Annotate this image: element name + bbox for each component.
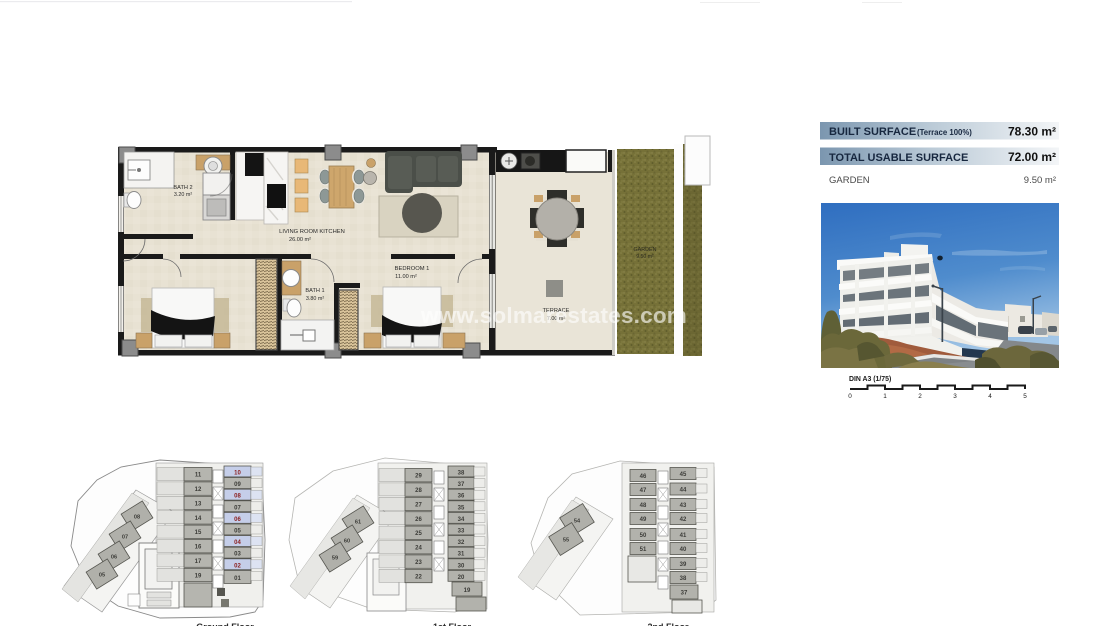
svg-text:34: 34 [458, 517, 465, 523]
svg-text:72.00 m²: 72.00 m² [1008, 150, 1056, 164]
svg-text:5: 5 [1023, 393, 1027, 400]
svg-text:36: 36 [458, 494, 465, 500]
svg-text:42: 42 [680, 517, 687, 523]
svg-text:Ground Floor: Ground Floor [196, 622, 254, 626]
svg-text:47: 47 [640, 488, 647, 494]
svg-text:DIN A3 (1/75): DIN A3 (1/75) [849, 376, 891, 383]
svg-text:54: 54 [574, 519, 581, 525]
svg-text:08: 08 [134, 515, 140, 521]
svg-text:LIVING ROOM KITCHEN: LIVING ROOM KITCHEN [279, 229, 345, 235]
svg-text:48: 48 [640, 503, 647, 509]
svg-text:05: 05 [234, 529, 241, 535]
svg-text:11: 11 [195, 473, 202, 479]
svg-text:35: 35 [458, 505, 465, 511]
svg-text:14: 14 [195, 516, 202, 522]
svg-text:9.50 m²: 9.50 m² [1024, 175, 1056, 186]
svg-text:61: 61 [355, 520, 361, 526]
svg-text:60: 60 [344, 539, 350, 545]
svg-text:44: 44 [680, 488, 687, 494]
svg-text:BATH 1: BATH 1 [305, 288, 324, 294]
svg-text:30: 30 [458, 563, 465, 569]
svg-text:13: 13 [195, 501, 202, 507]
svg-text:40: 40 [680, 547, 687, 553]
svg-text:22: 22 [415, 574, 422, 580]
svg-text:2: 2 [918, 393, 922, 400]
svg-text:37: 37 [458, 482, 465, 488]
svg-text:19: 19 [464, 588, 471, 594]
svg-text:GARDEN: GARDEN [633, 247, 656, 253]
svg-text:GARDEN: GARDEN [829, 175, 870, 186]
svg-text:37: 37 [681, 591, 688, 597]
svg-text:45: 45 [680, 472, 687, 478]
svg-text:1: 1 [883, 393, 887, 400]
svg-text:26.00 m²: 26.00 m² [289, 237, 311, 243]
svg-text:19: 19 [195, 573, 202, 579]
svg-text:29: 29 [415, 474, 422, 480]
svg-text:38: 38 [680, 576, 687, 582]
svg-text:51: 51 [640, 547, 647, 553]
svg-text:1st Floor: 1st Floor [433, 622, 472, 626]
svg-text:08: 08 [234, 494, 241, 500]
svg-text:24: 24 [415, 546, 422, 552]
svg-text:43: 43 [680, 503, 687, 509]
svg-text:59: 59 [332, 556, 338, 562]
svg-text:55: 55 [563, 538, 569, 544]
svg-text:3.80 m²: 3.80 m² [306, 296, 324, 302]
svg-text:32: 32 [458, 540, 465, 546]
svg-text:17: 17 [195, 559, 202, 565]
svg-text:06: 06 [111, 555, 117, 561]
svg-text:BUILT SURFACE: BUILT SURFACE [829, 126, 916, 138]
svg-text:07: 07 [234, 505, 241, 511]
svg-text:15: 15 [195, 530, 202, 536]
svg-text:BATH 2: BATH 2 [173, 185, 192, 191]
svg-text:05: 05 [99, 573, 105, 579]
svg-text:9.50 m²: 9.50 m² [636, 254, 654, 260]
svg-text:26: 26 [415, 517, 422, 523]
svg-text:06: 06 [234, 517, 241, 523]
svg-text:01: 01 [234, 576, 241, 582]
svg-text:46: 46 [640, 474, 647, 480]
svg-text:0: 0 [848, 393, 852, 400]
svg-text:28: 28 [415, 488, 422, 494]
svg-text:16: 16 [195, 545, 202, 551]
svg-text:3.20 m²: 3.20 m² [174, 192, 192, 198]
svg-text:10: 10 [234, 471, 241, 477]
svg-text:25: 25 [415, 531, 422, 537]
svg-text:11.00 m²: 11.00 m² [395, 274, 417, 280]
svg-text:38: 38 [458, 471, 465, 477]
svg-text:41: 41 [680, 533, 687, 539]
svg-text:49: 49 [640, 517, 647, 523]
svg-text:09: 09 [234, 482, 241, 488]
svg-text:TOTAL USABLE SURFACE: TOTAL USABLE SURFACE [829, 152, 968, 164]
svg-text:23: 23 [415, 560, 422, 566]
svg-text:50: 50 [640, 533, 647, 539]
svg-text:02: 02 [234, 563, 241, 569]
svg-text:2nd Floor: 2nd Floor [648, 622, 689, 626]
svg-text:(Terrace 100%): (Terrace 100%) [917, 128, 972, 137]
svg-text:31: 31 [458, 552, 465, 558]
svg-text:12: 12 [195, 487, 202, 493]
svg-text:33: 33 [458, 529, 465, 535]
svg-text:07: 07 [122, 535, 128, 541]
svg-text:3: 3 [953, 393, 957, 400]
svg-text:www.solmarestates.com: www.solmarestates.com [420, 303, 687, 328]
svg-text:4: 4 [988, 393, 992, 400]
svg-text:03: 03 [234, 552, 241, 558]
svg-text:39: 39 [680, 562, 687, 568]
svg-text:78.30 m²: 78.30 m² [1008, 125, 1056, 139]
svg-text:20: 20 [458, 575, 465, 581]
svg-text:27: 27 [415, 502, 422, 508]
svg-text:04: 04 [234, 540, 241, 546]
svg-text:BEDROOM 1: BEDROOM 1 [395, 266, 430, 272]
